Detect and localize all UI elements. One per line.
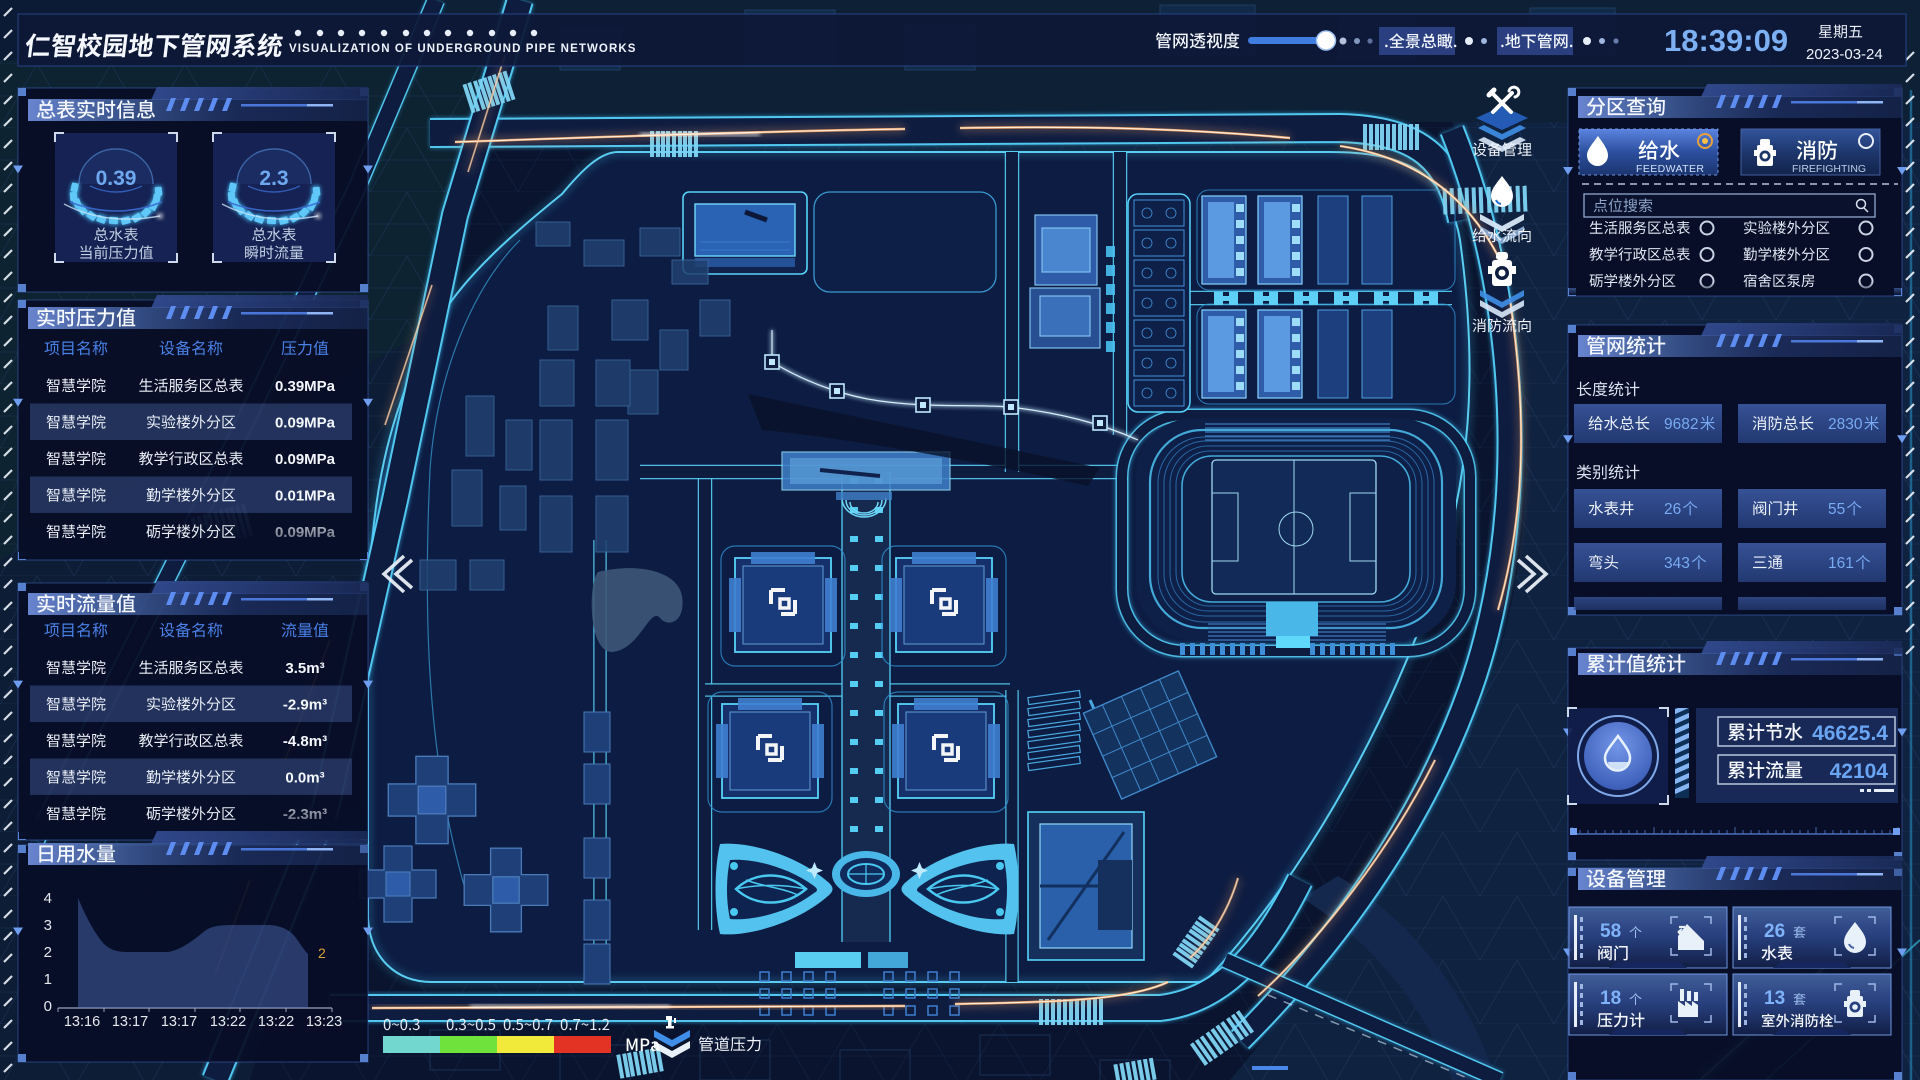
svg-text:3: 3 [44,917,52,934]
svg-text:18: 18 [1600,988,1621,1009]
svg-text:13: 13 [1764,988,1785,1009]
svg-text:46625.4: 46625.4 [1812,722,1888,745]
svg-text:13:23: 13:23 [306,1014,342,1030]
svg-text:1: 1 [44,971,52,988]
svg-text:0.09MPa: 0.09MPa [275,415,336,432]
svg-text:343: 343 [1664,555,1690,572]
svg-text:0.01MPa: 0.01MPa [275,488,336,505]
svg-text:13:17: 13:17 [112,1014,148,1030]
svg-text:0.39: 0.39 [96,167,137,190]
svg-text:0: 0 [44,998,52,1015]
svg-text:26: 26 [1664,501,1681,518]
svg-text:58: 58 [1600,921,1621,942]
svg-text:18:39:09: 18:39:09 [1664,23,1788,58]
svg-text:4: 4 [44,890,52,907]
svg-text:VISUALIZATION OF UNDERGROUND P: VISUALIZATION OF UNDERGROUND PIPE NETWOR… [289,43,637,55]
svg-text:42104: 42104 [1830,760,1889,783]
svg-text:161: 161 [1828,555,1854,572]
svg-text:0.0m³: 0.0m³ [285,770,324,787]
svg-text:55: 55 [1828,501,1845,518]
svg-text:26: 26 [1764,921,1785,942]
svg-text:FEEDWATER: FEEDWATER [1636,163,1704,175]
svg-text:2: 2 [44,944,52,961]
svg-text:2023-03-24: 2023-03-24 [1806,46,1883,63]
svg-text:9682: 9682 [1664,416,1698,433]
svg-text:13:16: 13:16 [64,1014,100,1030]
svg-text:-2.9m³: -2.9m³ [283,697,327,714]
svg-text:-4.8m³: -4.8m³ [283,733,327,750]
svg-text:2: 2 [318,945,326,961]
svg-text:13:22: 13:22 [258,1014,294,1030]
svg-text:2.3: 2.3 [259,167,288,190]
svg-text:3.5m³: 3.5m³ [285,660,324,677]
svg-text:13:22: 13:22 [210,1014,246,1030]
svg-text:13:17: 13:17 [161,1014,197,1030]
svg-text:FIREFIGHTING: FIREFIGHTING [1792,163,1866,175]
svg-text:0.39MPa: 0.39MPa [275,378,336,395]
svg-text:0.09MPa: 0.09MPa [275,451,336,468]
svg-text:2830: 2830 [1828,416,1863,433]
